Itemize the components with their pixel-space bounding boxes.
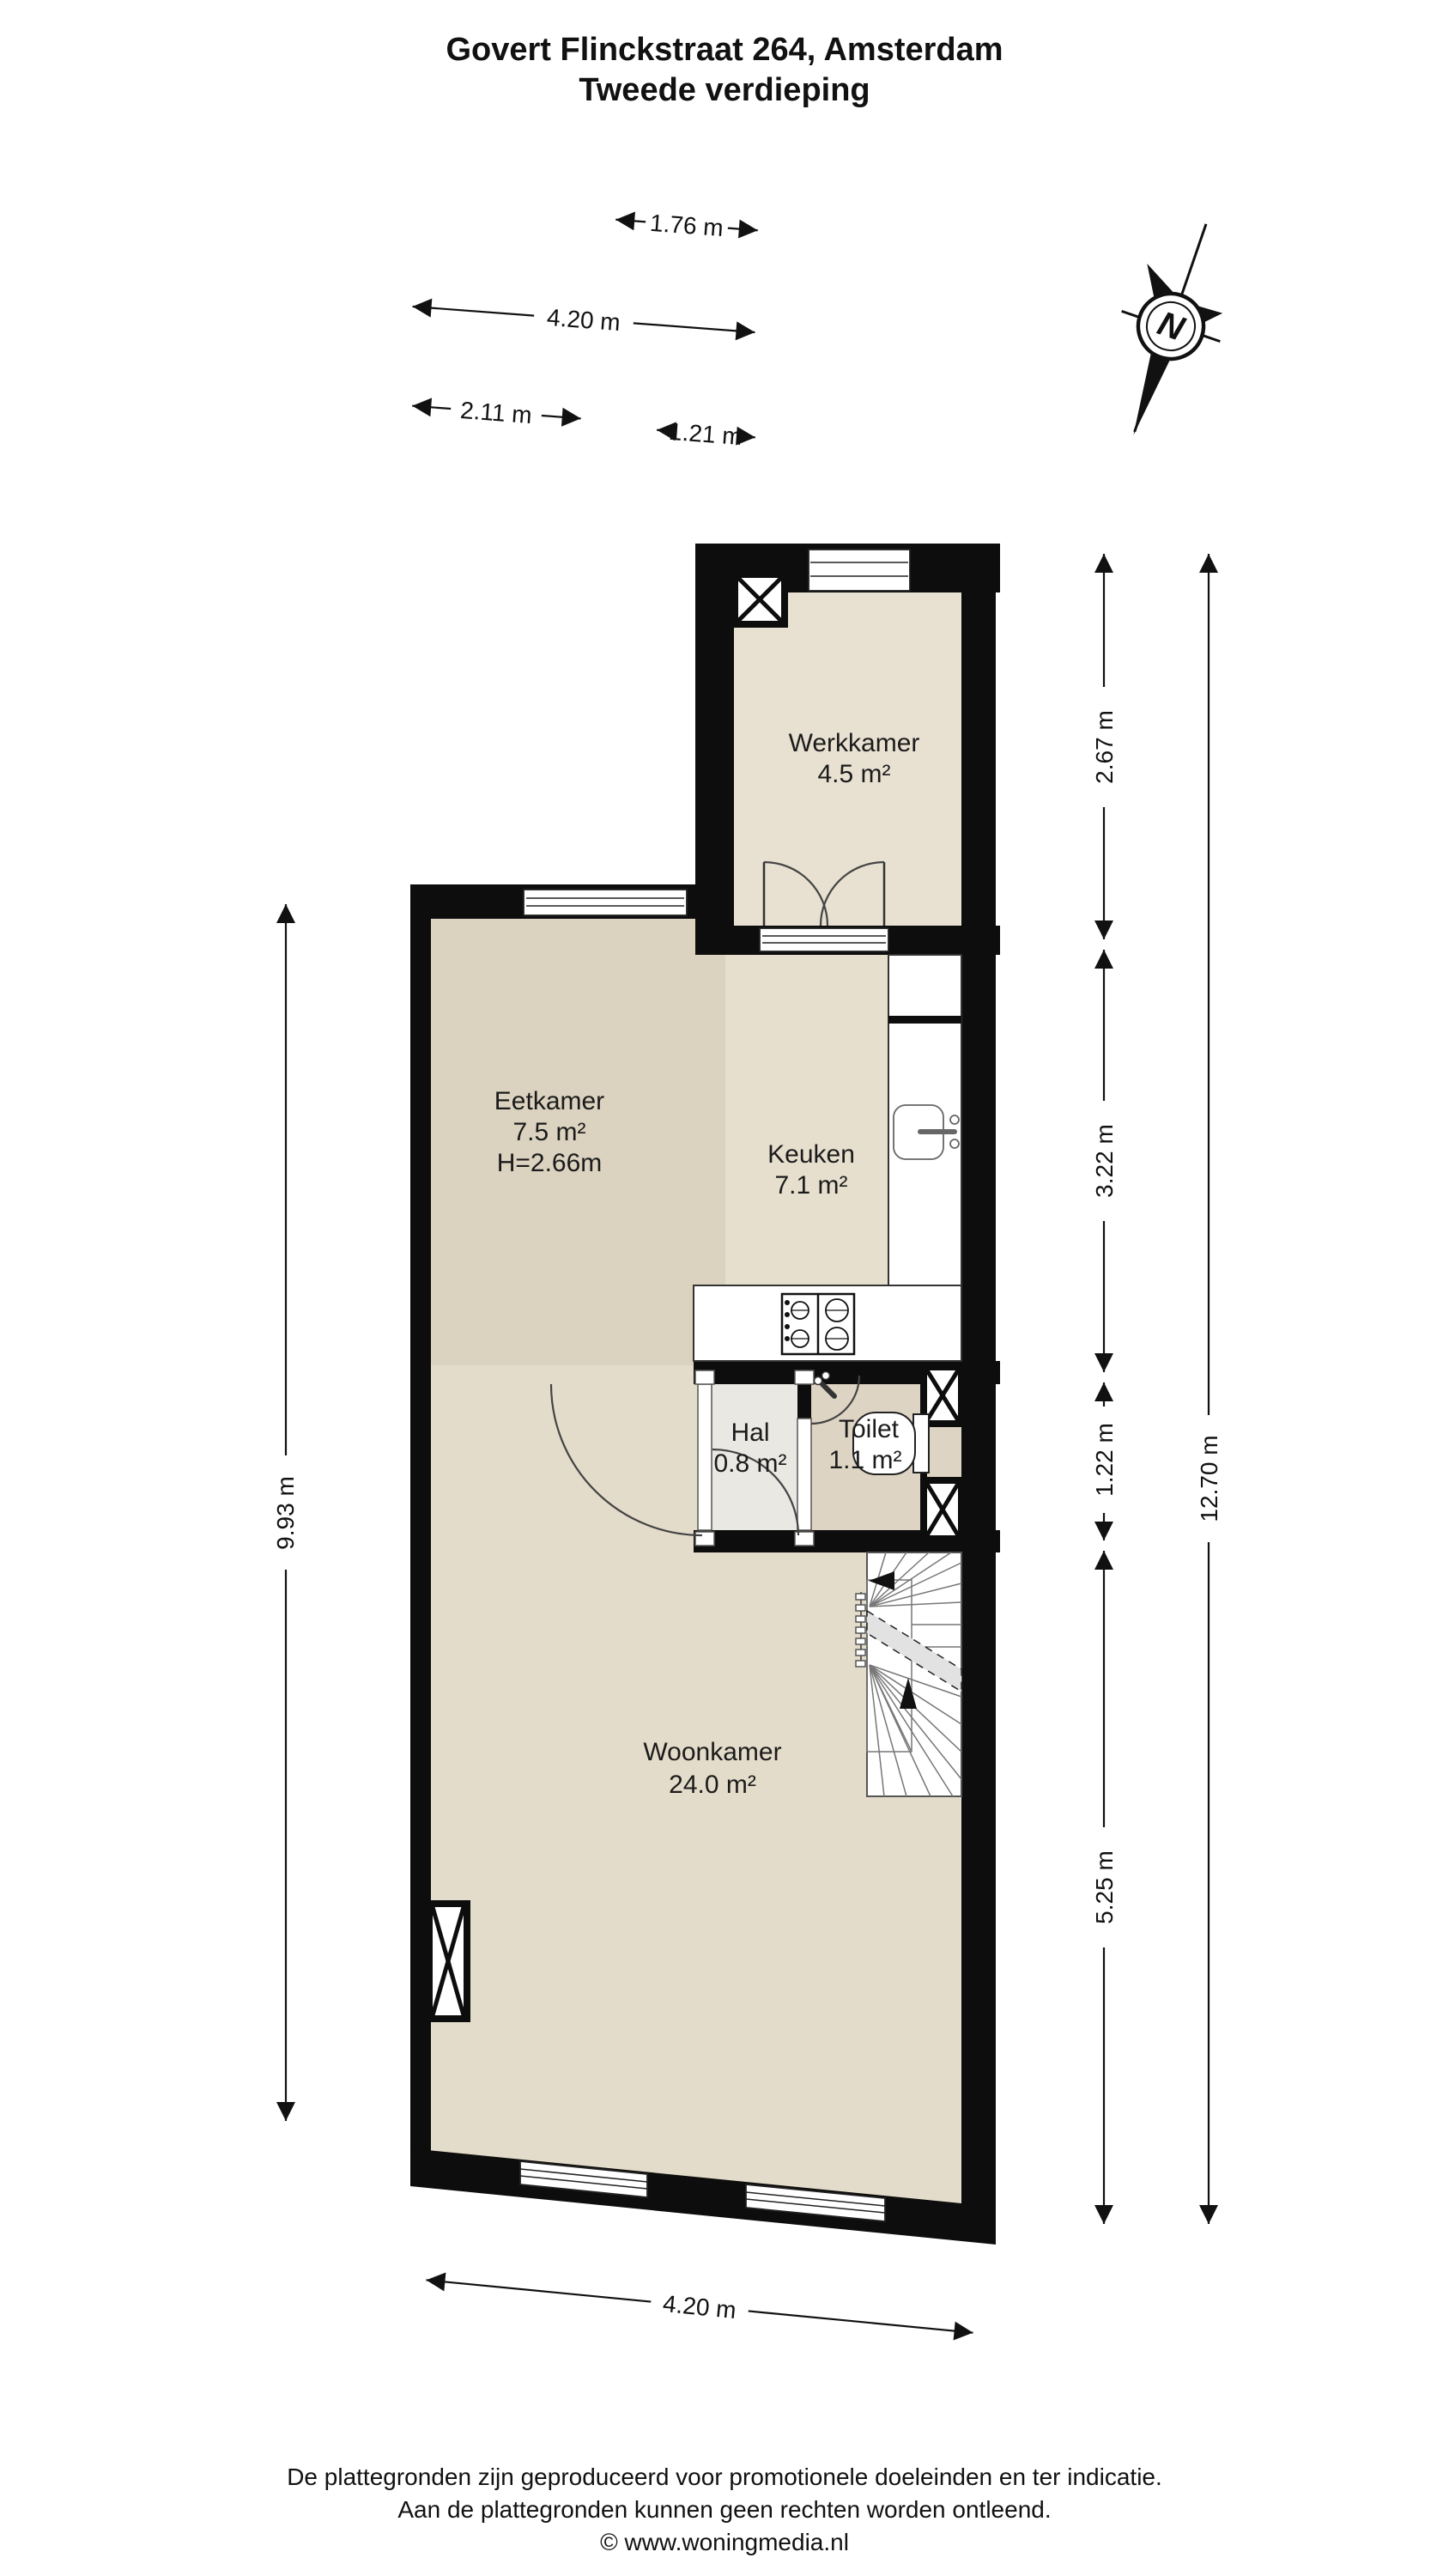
eetkamer-area: 7.5 m²: [512, 1118, 585, 1146]
svg-text:1.21 m: 1.21 m: [668, 418, 743, 450]
hal-post: [695, 1370, 714, 1384]
svg-text:4.20 m: 4.20 m: [662, 2290, 737, 2324]
dim-top-keuken: 1.21 m: [656, 417, 756, 452]
dim-right-woonkamer: 5.25 m: [1091, 1551, 1118, 2224]
keuken-area: 7.1 m²: [774, 1171, 847, 1200]
hal-glass-wall-right: [797, 1419, 811, 1530]
dim-bottom-total: 4.20 m: [425, 2267, 974, 2346]
hal-glass-wall-left: [698, 1384, 712, 1530]
svg-text:5.25 m: 5.25 m: [1091, 1850, 1118, 1924]
staircase: [856, 1552, 961, 1796]
keuken-label: Keuken: [767, 1140, 855, 1169]
page-title: Govert Flinckstraat 264, Amsterdam Tweed…: [446, 32, 1003, 108]
dim-right-total: 12.70 m: [1196, 554, 1222, 2224]
werkkamer-area: 4.5 m²: [817, 760, 890, 788]
svg-text:12.70 m: 12.70 m: [1196, 1435, 1222, 1522]
footer-disclaimer: De plattegronden zijn geproduceerd voor …: [287, 2464, 1162, 2555]
hal-post: [695, 1532, 714, 1546]
dim-top-eetkamer: 2.11 m: [411, 393, 582, 433]
svg-text:9.93 m: 9.93 m: [272, 1476, 299, 1550]
woonkamer-label: Woonkamer: [643, 1738, 781, 1766]
werkkamer-left-wall: [695, 544, 734, 936]
werkkamer-label: Werkkamer: [789, 729, 920, 757]
title-line1: Govert Flinckstraat 264, Amsterdam: [446, 32, 1003, 68]
toilet-label: Toilet: [839, 1415, 900, 1443]
werkkamer-keuken-glazed-door: [760, 928, 888, 951]
hal-area: 0.8 m²: [713, 1449, 786, 1478]
svg-text:3.22 m: 3.22 m: [1091, 1124, 1118, 1198]
woonkamer-area: 24.0 m²: [669, 1771, 756, 1799]
eetkamer-label: Eetkamer: [494, 1087, 604, 1115]
hal-post: [795, 1370, 814, 1384]
dim-left-height: 9.93 m: [272, 904, 299, 2121]
title-line2: Tweede verdieping: [579, 72, 870, 108]
dim-top-total: 4.20 m: [411, 294, 755, 346]
svg-text:1.22 m: 1.22 m: [1091, 1423, 1118, 1497]
footer-line2: Aan de plattegronden kunnen geen rechten…: [397, 2496, 1051, 2523]
footer-credit: © www.woningmedia.nl: [600, 2529, 849, 2555]
svg-text:4.20 m: 4.20 m: [546, 304, 621, 336]
eetkamer-ceiling-height: H=2.66m: [497, 1149, 603, 1177]
hal-label: Hal: [731, 1419, 769, 1447]
eetkamer-window: [524, 890, 687, 915]
werkkamer-shaft-icon: [731, 571, 788, 628]
toilet-area: 1.1 m²: [828, 1446, 901, 1474]
floor-plan-page: Govert Flinckstraat 264, Amsterdam Tweed…: [0, 0, 1449, 2576]
toilet-niche: [927, 1427, 961, 1477]
dim-top-werkkamer: 1.76 m: [615, 207, 759, 244]
dim-right-hal: 1.22 m: [1091, 1382, 1118, 1540]
hal-toilet-divider-stub: [797, 1384, 811, 1419]
svg-text:1.76 m: 1.76 m: [649, 210, 724, 241]
toilet-shaft-bottom-icon: [920, 1477, 965, 1542]
svg-text:2.67 m: 2.67 m: [1091, 710, 1118, 784]
compass-north-icon: N: [1085, 207, 1255, 452]
woonkamer-chimney-icon: [426, 1900, 470, 2022]
footer-line1: De plattegronden zijn geproduceerd voor …: [287, 2464, 1162, 2490]
dim-right-keuken: 3.22 m: [1091, 950, 1118, 1372]
floor-plan-canvas: Govert Flinckstraat 264, Amsterdam Tweed…: [0, 0, 1449, 2576]
counter-divider: [888, 1016, 961, 1024]
stove-icon: [782, 1294, 854, 1354]
werkkamer-window: [809, 550, 910, 591]
svg-text:2.11 m: 2.11 m: [459, 397, 533, 428]
dim-right-werkkamer: 2.67 m: [1091, 554, 1118, 939]
